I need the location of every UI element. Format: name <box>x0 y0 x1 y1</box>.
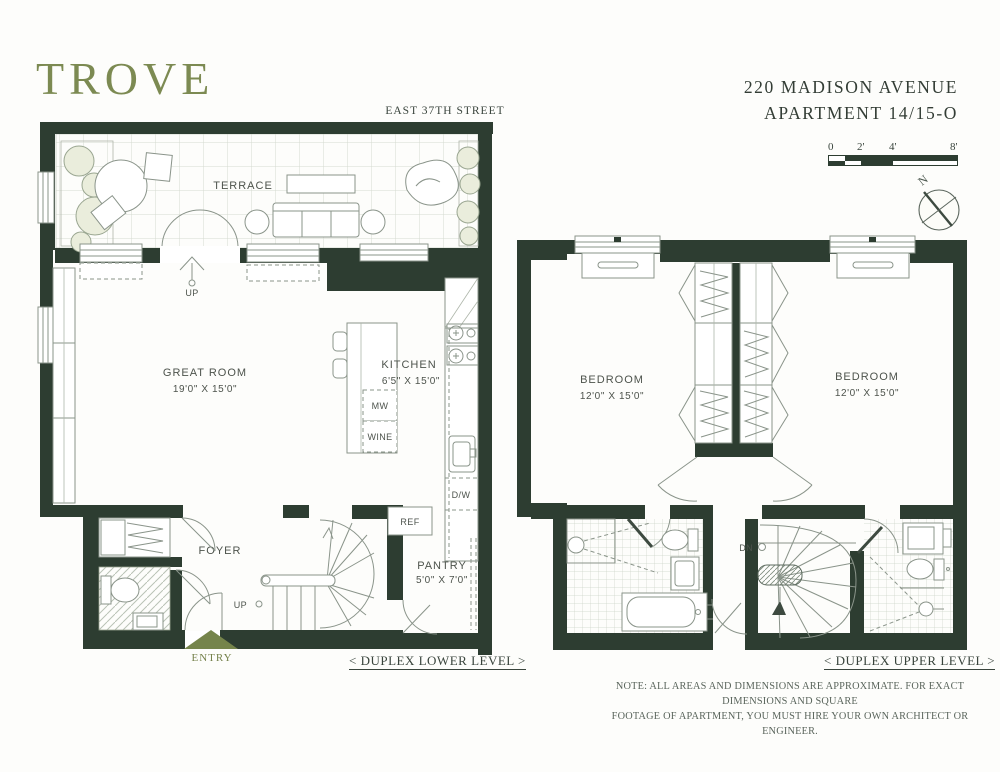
closet-left <box>679 263 732 443</box>
upper-staircase <box>758 525 856 638</box>
great-room-dims: 19'0" X 15'0" <box>173 384 237 395</box>
stair-hall-door <box>712 599 747 634</box>
address-line-2: APARTMENT 14/15-O <box>744 100 958 126</box>
brand-logo: TROVE <box>36 52 214 105</box>
terrace-label: TERRACE <box>213 180 273 192</box>
compass: N <box>908 172 968 238</box>
upper-level-plan: BEDROOM 12'0" X 15'0" BEDROOM 12'0" X 15… <box>510 235 975 665</box>
pantry-dims: 5'0" X 7'0" <box>416 575 468 586</box>
microwave-label: MW <box>372 401 389 411</box>
floorplan-page: { "brand": {"logo": "TROVE"}, "header": … <box>0 0 1000 772</box>
left-bath-toilet <box>662 529 698 551</box>
right-bath-toilet <box>907 559 950 580</box>
lower-stairs-up-label: UP <box>234 600 247 610</box>
scale-bar: 0 2' 4' 8' <box>828 141 958 166</box>
scale-tick-4: 4' <box>889 141 896 153</box>
lower-level-plan: TERRACE UP GREAT ROOM 19'0" X 15'0" MW <box>35 118 500 663</box>
right-shower-head <box>919 602 933 616</box>
upper-level-caption: < DUPLEX UPPER LEVEL > <box>824 652 995 670</box>
disclaimer-note: NOTE: ALL AREAS AND DIMENSIONS ARE APPRO… <box>598 679 982 739</box>
hallway-doors <box>658 457 812 501</box>
foyer-label: FOYER <box>199 545 242 557</box>
note-line-1: NOTE: ALL AREAS AND DIMENSIONS ARE APPRO… <box>598 679 982 709</box>
compass-north-label: N <box>915 172 931 188</box>
bedroom-left-dims: 12'0" X 15'0" <box>580 391 644 402</box>
kitchen-label: KITCHEN <box>381 359 436 371</box>
toilet-bowl <box>111 578 139 602</box>
building-address: 220 MADISON AVENUE APARTMENT 14/15-O <box>744 74 958 126</box>
lower-staircase <box>256 520 374 630</box>
kitchen-dims: 6'5" X 15'0" <box>382 376 440 387</box>
scale-bar-graphic <box>828 155 958 166</box>
stair-newel <box>758 565 802 585</box>
address-line-1: 220 MADISON AVENUE <box>744 74 958 100</box>
note-line-2: FOOTAGE OF APARTMENT, YOU MUST HIRE YOUR… <box>598 709 982 739</box>
lower-level-caption-text: < DUPLEX LOWER LEVEL > <box>349 653 526 670</box>
upper-level-caption-text: < DUPLEX UPPER LEVEL > <box>824 653 995 670</box>
closet-right <box>740 263 788 443</box>
street-label: EAST 37TH STREET <box>380 105 510 117</box>
bedroom-right-label: BEDROOM <box>835 371 899 383</box>
great-room-label: GREAT ROOM <box>163 367 247 379</box>
great-room-builtins <box>53 268 75 503</box>
left-bath-sink <box>671 557 699 590</box>
upper-stairs-dn-label: DN <box>739 543 753 553</box>
toilet-tank <box>101 576 111 604</box>
lounge-chair <box>406 160 459 205</box>
scale-tick-8: 8' <box>950 141 957 153</box>
shower-head <box>568 537 584 553</box>
stair-arrow <box>772 601 786 615</box>
scale-bar-ticks: 0 2' 4' 8' <box>828 141 958 155</box>
kitchen-counter <box>445 278 478 561</box>
entry-label: ENTRY <box>191 652 232 663</box>
scale-tick-2: 2' <box>857 141 864 153</box>
bathtub <box>622 593 713 631</box>
pantry-label: PANTRY <box>417 560 467 572</box>
powder-room <box>99 567 210 630</box>
bedroom-left-label: BEDROOM <box>580 374 644 386</box>
refrigerator-label: REF <box>400 517 419 527</box>
terrace-up-label: UP <box>185 288 198 298</box>
dishwasher-label: D/W <box>452 490 471 500</box>
lower-level-caption: < DUPLEX LOWER LEVEL > <box>349 652 526 670</box>
scale-tick-0: 0 <box>828 141 834 153</box>
bedroom-right-dims: 12'0" X 15'0" <box>835 388 899 399</box>
wine-fridge-label: WINE <box>367 432 392 442</box>
